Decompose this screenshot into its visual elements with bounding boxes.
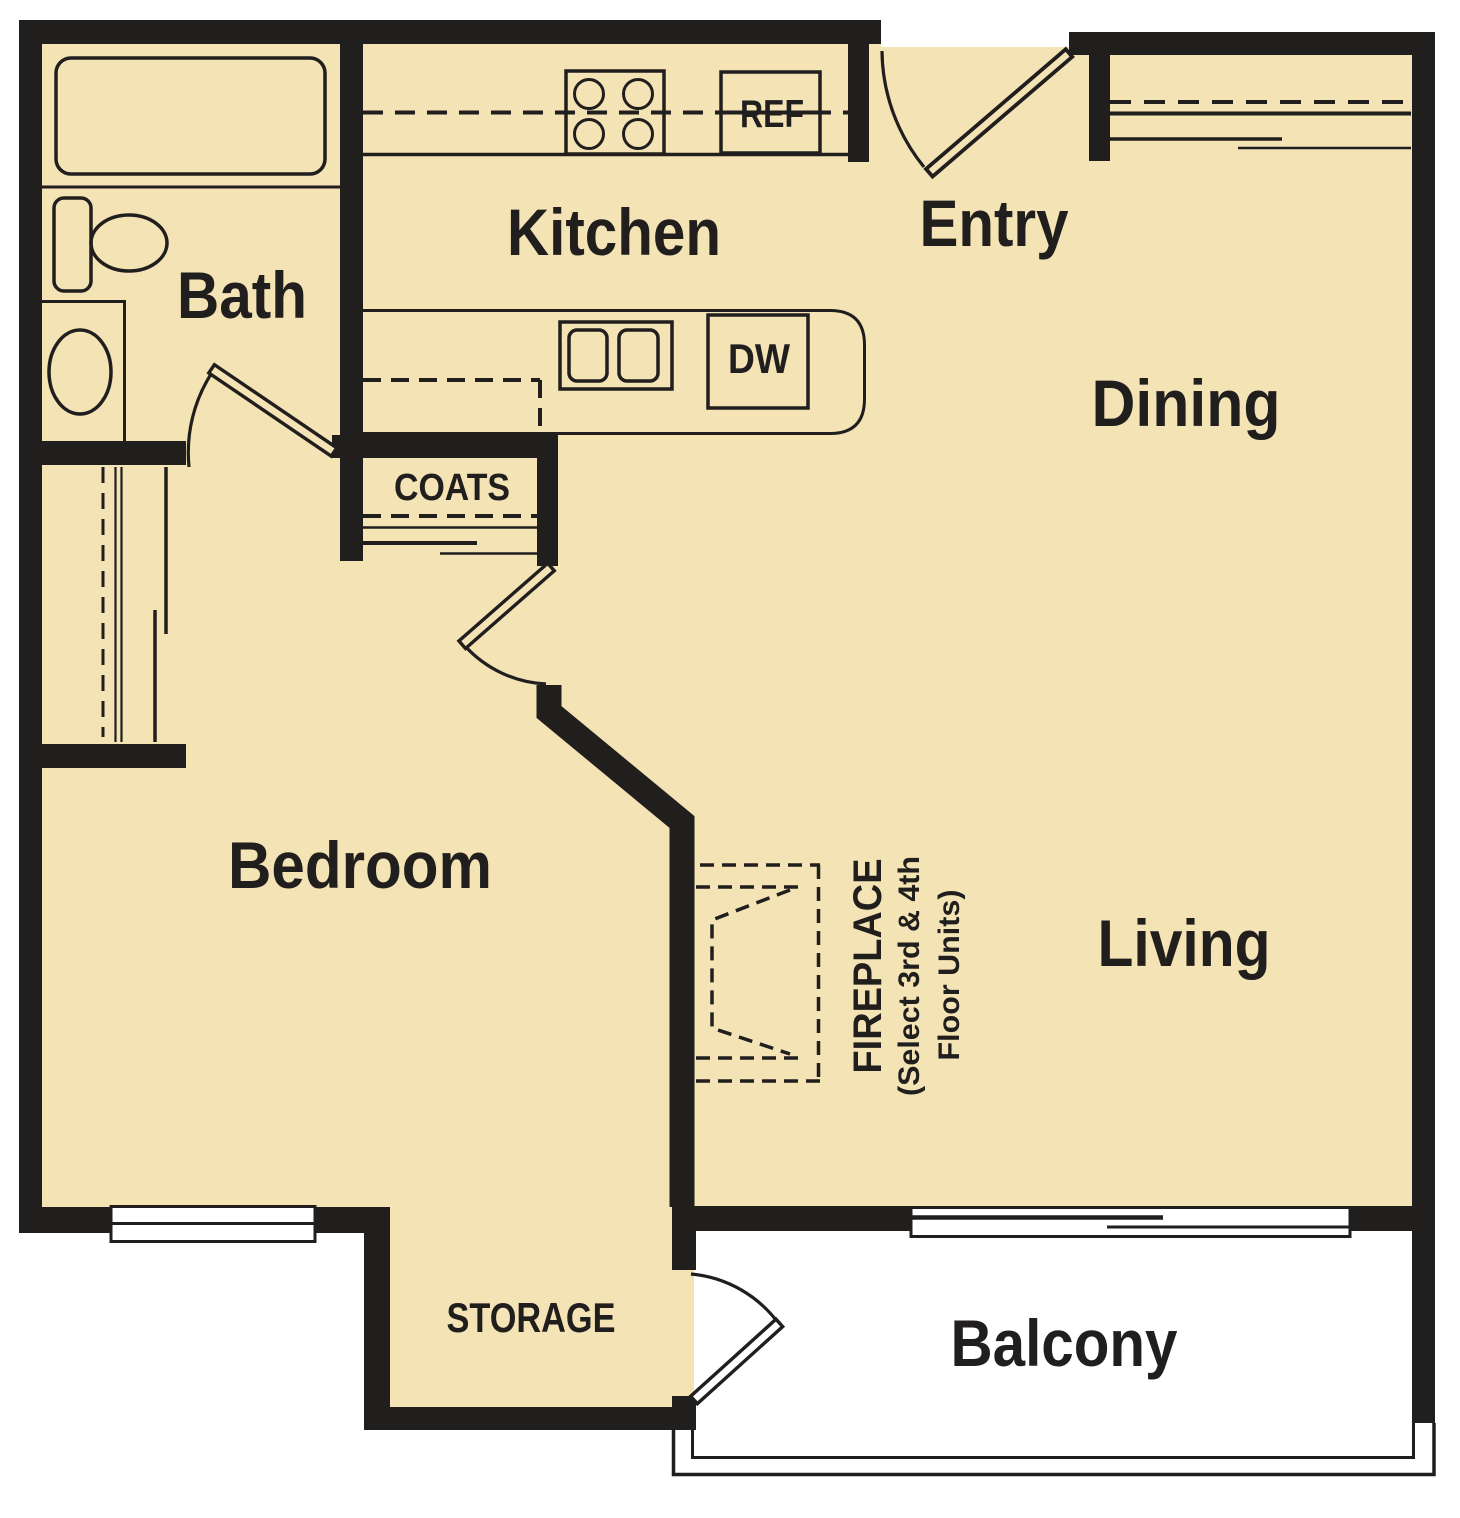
svg-text:Entry: Entry bbox=[920, 186, 1069, 260]
svg-text:REF: REF bbox=[740, 93, 804, 136]
svg-text:Living: Living bbox=[1098, 906, 1271, 980]
svg-text:Balcony: Balcony bbox=[951, 1306, 1178, 1380]
svg-text:STORAGE: STORAGE bbox=[447, 1294, 616, 1341]
svg-text:Bedroom: Bedroom bbox=[228, 828, 492, 902]
svg-text:Kitchen: Kitchen bbox=[507, 195, 721, 269]
svg-text:Dining: Dining bbox=[1092, 366, 1281, 440]
svg-text:(Select 3rd & 4th: (Select 3rd & 4th bbox=[893, 856, 926, 1096]
svg-text:Floor Units): Floor Units) bbox=[933, 890, 966, 1061]
svg-text:Bath: Bath bbox=[177, 258, 307, 332]
svg-text:COATS: COATS bbox=[394, 467, 510, 509]
svg-text:FIREPLACE: FIREPLACE bbox=[846, 859, 890, 1074]
svg-text:DW: DW bbox=[728, 335, 790, 382]
